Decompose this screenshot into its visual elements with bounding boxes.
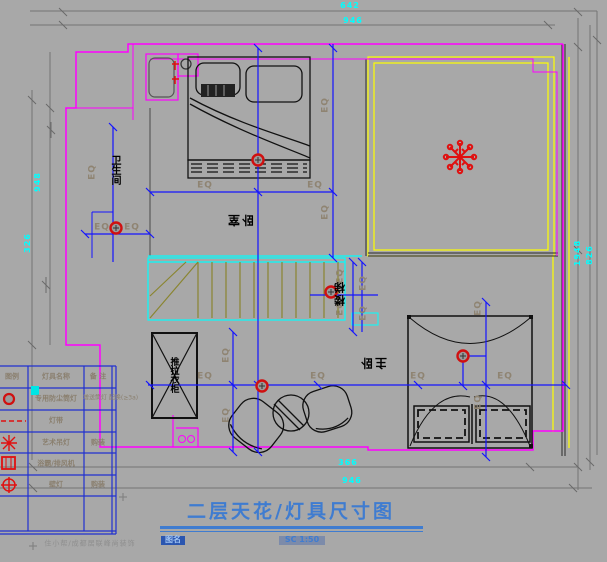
eq-label: EQ [89, 164, 98, 180]
eq-label: EQ [197, 373, 213, 382]
legend-row-name: 艺术吊灯 [42, 440, 70, 447]
dim-right-1: 1948 [574, 240, 582, 266]
watermark-text: 住小帮/成都居联峰尚装饰 [44, 541, 135, 548]
drawing-geometry [0, 0, 607, 562]
eq-label: EQ [475, 394, 484, 410]
eq-label: EQ [94, 224, 110, 233]
drawing-title: 二层天花/灯具尺寸图 [187, 503, 395, 522]
legend-row-name: 灯带 [49, 418, 63, 425]
room-label-bathroom: 卫生间 [109, 155, 119, 185]
legend-row-remark: 购装 [91, 482, 105, 489]
chandelier-symbol [444, 141, 476, 173]
dim-right-2: 826 [586, 245, 594, 265]
eq-label: EQ [360, 305, 369, 321]
eq-label: EQ [475, 300, 484, 316]
eq-label: EQ [223, 347, 232, 363]
dim-left-2: 326 [24, 233, 32, 253]
sink-fixture [149, 58, 191, 97]
cad-ceiling-plan: EQ EQ EQ EQ EQ EQ EQ EQ EQ EQ EQ EQ EQ E… [0, 0, 607, 562]
eq-label: EQ [497, 373, 513, 382]
legend-table-grid [0, 366, 116, 534]
dim-left-1: 948 [34, 172, 42, 192]
legend-downlight-icon [4, 394, 14, 404]
eq-label: EQ [223, 407, 232, 423]
eq-label: EQ [322, 97, 331, 113]
eq-label: EQ [360, 275, 369, 291]
dimension-lines-gray [0, 8, 601, 550]
eq-label: EQ [310, 373, 326, 382]
legend-row-name: 浴霸/排风机 [37, 461, 75, 468]
room-label-stairs: 楼梯 [335, 280, 346, 306]
legend-header-remark: 备 注 [90, 374, 106, 381]
drawing-name-label: 图名 [165, 536, 181, 544]
dim-top-2: 946 [343, 17, 363, 25]
walls-magenta [66, 44, 563, 450]
room-label-bedroom: 卧室 [226, 214, 254, 226]
legend-chandelier-icon [1, 435, 17, 451]
legend-wall-lamp-icon [1, 477, 17, 493]
legend-row-name: 专用防尘筒灯 [35, 396, 77, 403]
bed-top [188, 57, 310, 178]
legend-header-symbol: 图例 [5, 374, 19, 381]
dim-bottom-1: 366 [338, 459, 358, 467]
bed-master [407, 315, 533, 448]
room-label-master-bedroom: 主卧 [359, 357, 387, 369]
room-label-wardrobe: 推拉衣柜 [169, 357, 178, 393]
legend-header-name: 灯具名称 [42, 374, 70, 381]
eq-label: EQ [197, 182, 213, 191]
eq-label: EQ [410, 373, 426, 382]
eq-label: EQ [307, 182, 323, 191]
legend-row-name: 壁灯 [49, 482, 63, 489]
legend-row-remark: 购装 [91, 440, 105, 447]
armchair-right [299, 382, 356, 436]
legend-row-remark: 增送筒灯 配换(≥3a) [83, 396, 113, 403]
dim-bottom-2: 946 [342, 477, 362, 485]
drawing-scale: SC 1:50 [285, 536, 319, 544]
eq-label: EQ [124, 224, 140, 233]
dim-top-1: 642 [340, 2, 360, 10]
eq-label: EQ [322, 204, 331, 220]
